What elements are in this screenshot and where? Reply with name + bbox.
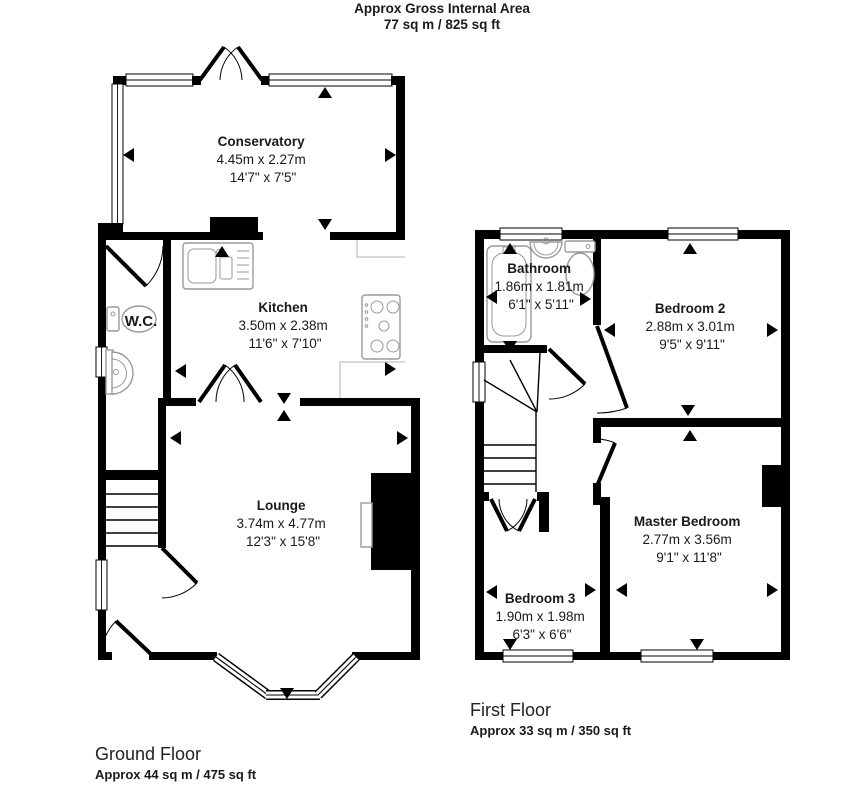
room-label-wc: W.C.: [125, 313, 158, 330]
bedroom2-master-wall: [593, 418, 781, 427]
bedroom3-master-wall: [600, 497, 610, 660]
arrow-right-icon: [397, 431, 408, 445]
room-label-kitchen: Kitchen 3.50m x 2.38m 11'6" x 7'10": [238, 300, 331, 351]
first-floor-plan: Bathroom 1.86m x 1.81m 6'1" x 5'11" Bedr…: [473, 228, 790, 662]
hall-lounge-door: [162, 548, 197, 598]
ground-floor-plan: Conservatory 4.45m x 2.27m 14'7" x 7'5" …: [96, 47, 420, 699]
window: [503, 650, 573, 662]
wc-kitchen-wall: [163, 240, 171, 398]
arrow-up-icon: [277, 410, 291, 421]
room-label-master-bedroom: Master Bedroom 2.77m x 3.56m 9'1" x 11'8…: [634, 514, 744, 565]
window: [269, 74, 392, 86]
ground-floor-area: Approx 44 sq m / 475 sq ft: [95, 765, 256, 785]
ground-floor-title: Ground Floor: [95, 744, 256, 765]
wc-sink-icon: [106, 350, 133, 394]
arrow-up-icon: [318, 87, 332, 98]
kitchen-lounge-doors: [199, 365, 261, 402]
master-wall-stub: [593, 483, 601, 505]
lounge-top-wall: [158, 365, 420, 406]
arrow-up-icon: [683, 430, 697, 441]
bathroom-door: [549, 349, 585, 399]
stairs-icon: [484, 353, 540, 492]
ground-floor-caption: Ground Floor Approx 44 sq m / 475 sq ft: [95, 744, 256, 785]
bedroom3-door: [491, 499, 535, 531]
window: [473, 362, 485, 402]
bedroom2-door: [597, 326, 627, 413]
front-door: [98, 621, 159, 660]
hob-icon: [362, 295, 400, 359]
stairs-icon: [106, 470, 158, 546]
room-label-lounge: Lounge 3.74m x 4.77m 12'3" x 15'8": [236, 498, 329, 549]
arrow-left-icon: [175, 364, 186, 378]
room-label-bedroom2: Bedroom 2 2.88m x 3.01m 9'5" x 9'11": [645, 301, 738, 352]
arrow-right-icon: [767, 323, 778, 337]
arrow-left-icon: [123, 148, 134, 162]
kitchen-top-wall: [122, 217, 405, 240]
window: [126, 74, 193, 86]
arrow-down-icon: [681, 405, 695, 416]
arrow-down-icon: [277, 393, 291, 404]
chimney-breast: [371, 473, 413, 570]
french-door: [200, 47, 262, 80]
bathroom-sink-icon: [530, 238, 562, 258]
arrow-left-icon: [616, 583, 627, 597]
window: [96, 560, 107, 610]
arrow-right-icon: [585, 583, 596, 597]
arrow-left-icon: [604, 323, 615, 337]
room-label-bathroom: Bathroom 1.86m x 1.81m 6'1" x 5'11": [494, 261, 587, 312]
left-outer-wall: [96, 240, 107, 660]
window: [112, 84, 123, 224]
window: [500, 228, 562, 240]
arrow-down-icon: [318, 219, 332, 230]
wc-door: [106, 246, 163, 286]
room-label-conservatory: Conservatory 4.45m x 2.27m 14'7" x 7'5": [216, 134, 309, 185]
kitchen-counter: [357, 240, 405, 257]
master-wall-stub: [593, 427, 601, 443]
floorplan-drawing: Conservatory 4.45m x 2.27m 14'7" x 7'5" …: [0, 0, 852, 800]
chimney-breast: [762, 465, 782, 507]
first-floor-caption: First Floor Approx 33 sq m / 350 sq ft: [470, 700, 631, 741]
arrow-right-icon: [385, 148, 396, 162]
floorplan-canvas: Approx Gross Internal Area 77 sq m / 825…: [0, 0, 852, 800]
arrow-up-icon: [683, 243, 697, 254]
hall-lounge-wall: [158, 398, 166, 548]
kitchen-counter: [340, 362, 405, 398]
master-bedroom-door: [597, 439, 615, 486]
room-label-bedroom3: Bedroom 3 1.90m x 1.98m 6'3" x 6'6": [495, 591, 588, 642]
first-floor-title: First Floor: [470, 700, 631, 721]
arrow-left-icon: [486, 585, 497, 599]
first-floor-area: Approx 33 sq m / 350 sq ft: [470, 721, 631, 741]
kitchen-sink-icon: [183, 243, 253, 289]
arrow-left-icon: [170, 431, 181, 445]
arrow-right-icon: [767, 583, 778, 597]
arrow-right-icon: [385, 362, 396, 376]
arrow-down-icon: [690, 639, 704, 650]
fireplace-icon: [361, 503, 372, 547]
window: [668, 228, 738, 240]
window: [641, 650, 713, 662]
